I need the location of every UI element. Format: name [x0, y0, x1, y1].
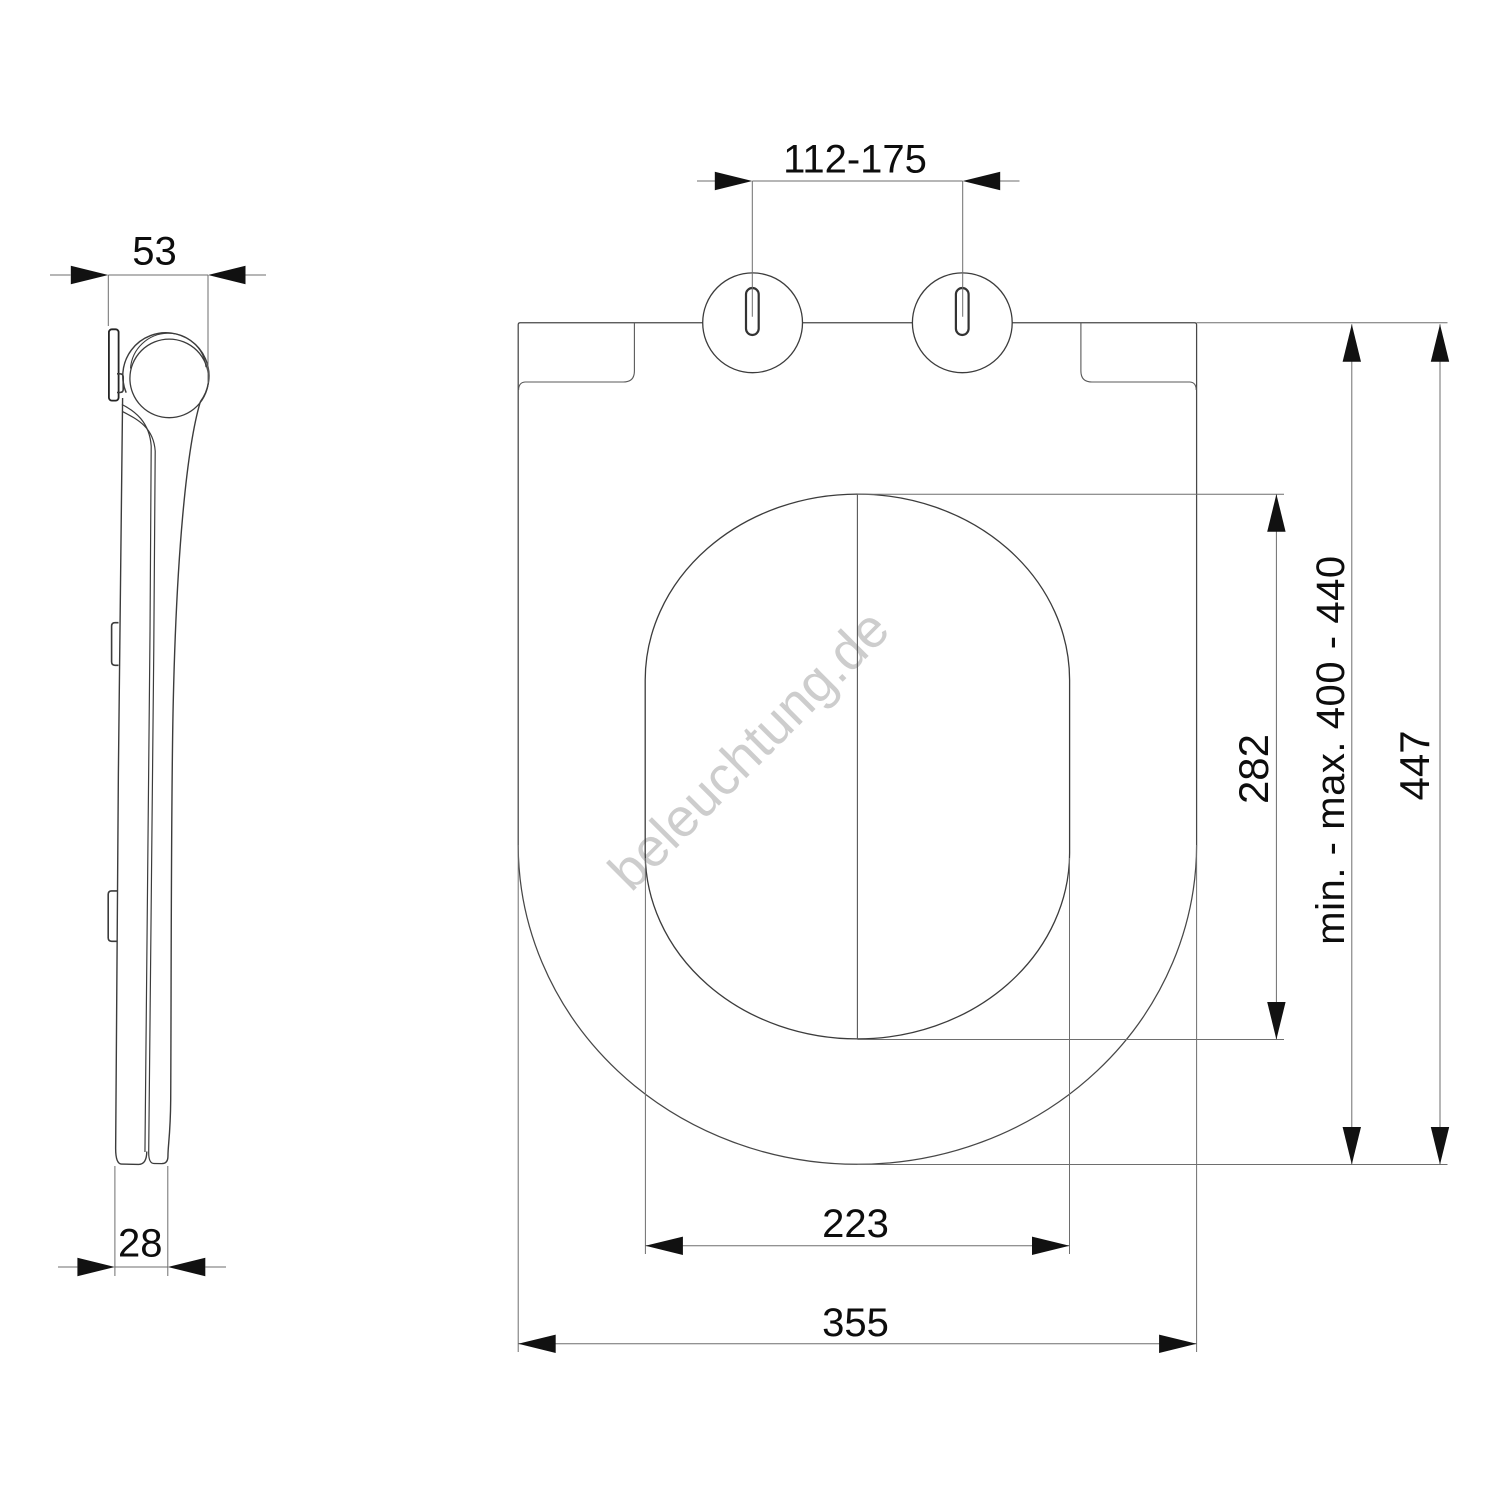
svg-text:223: 223 — [822, 1202, 889, 1246]
svg-text:447: 447 — [1391, 730, 1438, 800]
svg-text:min. - max. 400 - 440: min. - max. 400 - 440 — [1309, 555, 1353, 944]
svg-text:112-175: 112-175 — [783, 137, 927, 181]
svg-text:28: 28 — [118, 1221, 163, 1265]
svg-text:355: 355 — [822, 1301, 889, 1345]
svg-text:282: 282 — [1230, 734, 1277, 804]
svg-text:53: 53 — [132, 230, 177, 274]
